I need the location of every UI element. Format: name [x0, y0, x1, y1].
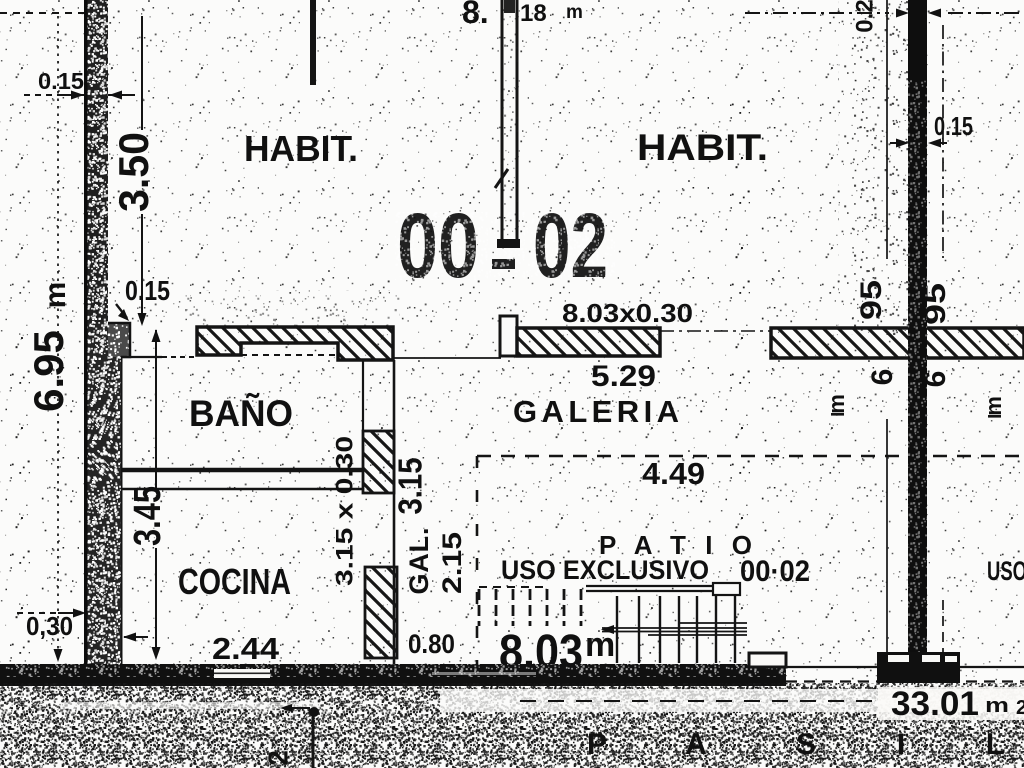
svg-text:0.80: 0.80	[408, 629, 455, 659]
svg-text:GAL.: GAL.	[404, 528, 434, 595]
svg-text:6: 6	[866, 369, 899, 386]
svg-text:0.15: 0.15	[38, 68, 84, 94]
svg-text:HABIT.: HABIT.	[637, 127, 768, 168]
svg-text:33.01: 33.01	[891, 685, 979, 723]
svg-text:HABIT.: HABIT.	[244, 128, 358, 169]
svg-text:4.49: 4.49	[642, 456, 705, 491]
svg-text:BAÑO: BAÑO	[189, 392, 293, 434]
svg-text:A: A	[685, 728, 707, 761]
svg-text:m: m	[824, 394, 849, 414]
svg-text:m: m	[39, 282, 72, 309]
svg-text:18: 18	[520, 0, 547, 27]
svg-text:0.15: 0.15	[934, 111, 973, 141]
svg-text:3.45: 3.45	[127, 486, 169, 546]
svg-text:S: S	[796, 728, 816, 761]
svg-text:00·02: 00·02	[740, 555, 810, 588]
svg-text:3.15: 3.15	[392, 458, 429, 515]
svg-text:2: 2	[1016, 697, 1024, 719]
svg-text:3.50: 3.50	[110, 132, 157, 212]
svg-text:8.: 8.	[462, 0, 489, 30]
svg-text:2.15: 2.15	[437, 532, 467, 594]
svg-text:COCINA: COCINA	[178, 561, 291, 602]
svg-text:2: 2	[262, 750, 293, 766]
svg-text:2.44: 2.44	[212, 631, 280, 666]
svg-text:m: m	[985, 695, 1009, 717]
svg-text:m: m	[585, 626, 615, 664]
svg-text:m: m	[566, 2, 583, 23]
svg-text:I: I	[897, 728, 905, 761]
svg-text:0.2: 0.2	[851, 0, 878, 33]
svg-text:L: L	[986, 728, 1004, 761]
svg-text:USO EXCLUSIVO: USO EXCLUSIVO	[501, 555, 709, 585]
svg-text:6.95: 6.95	[25, 330, 72, 412]
svg-text:P: P	[587, 728, 607, 761]
svg-text:m: m	[981, 396, 1006, 416]
svg-text:0,30: 0,30	[26, 611, 73, 641]
svg-text:0.15: 0.15	[125, 275, 170, 306]
svg-text:5.29: 5.29	[591, 360, 656, 393]
svg-text:95: 95	[855, 280, 888, 320]
svg-text:8.03x0.30: 8.03x0.30	[562, 298, 693, 328]
svg-text:3.15 x 0.30: 3.15 x 0.30	[331, 436, 358, 586]
svg-text:USO: USO	[987, 556, 1024, 586]
